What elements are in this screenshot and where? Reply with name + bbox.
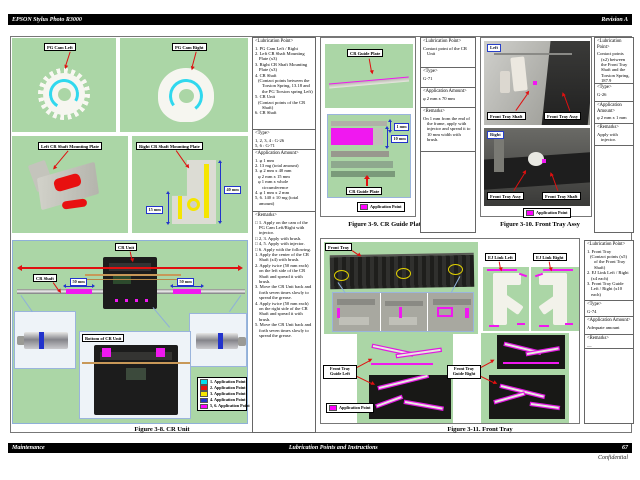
section-header: <Lubrication Point> [423,39,473,45]
legend-color-swatch [200,391,208,397]
legend-color-swatch [360,204,368,210]
section-lubrication-point: <Lubrication Point> 1. PG Cam Left / Rig… [253,38,315,130]
callout-line [153,307,170,327]
yellow-application-strip [178,196,182,219]
section-header: <Lubrication Point> [255,39,313,45]
spec-line: φ 2 mm x 1 mm [597,115,631,120]
label-front-tray-shaft: Front Tray Shaft [542,192,581,200]
yellow-callout-ellipse [334,270,349,281]
measure-arrow-40mm [220,163,221,221]
section-header: <Remarks> [587,336,631,342]
blue-application-band [218,333,223,349]
cr-guide-plate-detail: 1 mm 10 mm CR Guide Plate [327,114,411,198]
casting-detail [337,299,375,305]
footer-section-title: Lubrication Points and Instructions [289,445,378,451]
yellow-callout-ellipse [448,264,463,275]
label-ej-link-left: EJ Link Left [485,253,516,261]
label-front-tray-assy: Front Tray Assy [544,112,581,120]
measure-arrow-50mm-right [173,286,201,287]
spec-line: 2. Apply twice (50 mm each) on the left … [255,263,313,285]
left-cr-shaft-mounting-plate-photo: Left CR Shaft Mounting Plate [12,136,128,233]
spec-line: φ 1 mm x whole circumference [255,179,313,190]
fig3-8-legend: 1. Application Point2. Application Point… [197,377,247,411]
magenta-application-mark [489,325,499,327]
section-application-amount: <Application Amount> Adequate amount [585,317,633,335]
guide-left-photo-2 [369,375,451,419]
spec-line: 5. Move the CR Unit back and forth seven… [255,322,313,338]
legend-color-swatch [200,404,208,410]
cable-art [82,362,190,364]
red-arrow [65,51,71,65]
spec-line: Adequate amount [587,325,631,330]
callout-line [229,295,241,312]
section-remarks: <Remarks> □ 1. Apply on the cam of the P… [253,212,315,433]
section-lines: On 1 mm from the end of the frame, apply… [423,116,473,143]
cr-unit-bottom-detail [126,368,146,380]
label-front-tray: Front Tray [325,243,352,251]
spec-line: (Contact points of the CR Shaft) [255,100,313,111]
spec-line: Apply with injector. [597,132,631,143]
yellow-application-strip [204,164,209,218]
section-empty [421,152,475,233]
label-cr-guide-plate: CR Guide Plate [347,49,383,57]
gear-hole-art [58,88,71,101]
section-remarks: <Remarks> Apply with injector. [595,124,633,146]
spec-line: Contact points (x2) between the Front Tr… [597,51,631,83]
legend-color-swatch [200,379,208,385]
magenta-application-dot [542,159,546,163]
spec-table-fig3-8: <Lubrication Point> 1. PG Cam Left / Rig… [252,37,316,433]
legend-entry: Application Point [360,204,402,210]
spec-table-fig3-10: <Lubrication Point> Contact points (x2) … [594,37,634,233]
spec-line: (Contact points (x5) of the Front Tray S… [587,254,631,270]
dim-15mm: 15 mm [146,206,163,214]
magenta-application-dot [145,299,148,302]
section-header: <Type> [255,131,313,137]
red-travel-arrow [21,267,239,269]
legend-label: Application Point [536,210,568,216]
magenta-application-mark [399,307,402,318]
yellow-application-ring [187,198,200,211]
legend-color-swatch [526,210,534,216]
magenta-application-mark [565,323,573,325]
right-cr-shaft-mounting-plate-photo: 40 mm 15 mm Right CR Shaft Mounting Plat… [132,136,248,233]
magenta-application-mark [539,325,549,327]
section-empty [585,349,633,424]
cable-art [85,274,181,276]
zoom-divider [427,293,428,332]
header-revision: Revision A [601,17,628,23]
pg-cam-left-photo: PG Cam Left [12,38,116,132]
spec-line: 3. Move the CR Unit back and forth seven… [255,284,313,300]
spec-line: □ 4, 5. Apply with injector. [255,241,313,246]
spec-line: Contact point of the CR Unit [423,46,473,57]
section-header: <Type> [597,85,631,91]
confidential-note: Confidential [598,455,628,461]
cable-art [85,279,181,280]
label-ej-link-right: EJ Link Right [533,253,567,261]
badge-left: Left [487,44,501,52]
layer-art [331,151,389,157]
shaft-cylinder-art [196,333,238,349]
spec-line: □ 1. Apply on the cam of the PG Cam Left… [255,220,313,236]
section-header: <Remarks> [597,125,631,131]
cr-unit-photo-panel: CR Unit CR Shaft 50 mm 50 mm [12,240,248,424]
dim-10mm: 10 mm [391,135,408,143]
spec-line: 3. Front Tray Guide Left / Right (x10 ea… [587,281,631,297]
shaft-end-callout-right [189,313,247,367]
section-lines: φ 2 mm x 70 mm [423,96,473,101]
label-front-tray-guide-left: Front Tray Guide Left [323,365,357,379]
section-lines: 1. PG Cam Left / Right2. Left CR Shaft M… [255,46,313,116]
fig3-11-caption: Figure 3-11. Front Tray [330,426,630,433]
guide-right-photos [481,333,569,423]
section-header: <Application Amount> [597,103,631,114]
section-lines: Contact point of the CR Unit [423,46,473,57]
section-lines: 1. φ 1 mm2. 13 mg (total amount)3. φ 2 m… [255,158,313,207]
cr-guide-plate-photo: CR Guide Plate [325,44,413,108]
red-up-arrow [366,179,368,186]
label-pg-cam-right: PG Cam Right [172,43,207,51]
spec-line: — [587,343,631,348]
lubricated-rib-art [397,349,441,357]
red-arrow [191,52,196,67]
section-lines: G-74 [587,309,631,314]
guide-right-photo-2 [489,375,565,419]
legend-label: Application Point [370,204,402,210]
section-header: <Application Amount> [255,151,313,157]
measure-arrow-50mm-left [66,286,92,287]
shaft-cylinder-art [24,332,68,349]
spec-line: 2. EJ Link Left / Right (x4 each) [587,270,631,281]
bottom-of-cr-unit-callout: Bottom of CR Unit [79,331,191,419]
section-type: <Type> G-26 [595,84,633,102]
magenta-application-square [156,348,165,357]
guide-left-photo-1 [365,335,449,369]
measure-arrow-1mm [390,122,391,130]
section-header: <Application Amount> [587,318,631,324]
magenta-application-dot [533,81,537,85]
section-lubrication-point: <Lubrication Point> 1. Front Tray(Contac… [585,241,633,301]
legend-label: 5, 6. Application Point [210,403,250,409]
spec-line: 5, 6. 140 ± 10 mg (total amount) [255,195,313,206]
magenta-application-area [331,128,373,145]
red-arrow [548,262,550,268]
dim-50mm-left: 50 mm [70,278,87,286]
section-type: <Type> G-74 [585,301,633,317]
fig3-11-legend: Application Point [326,403,374,413]
dim-1mm: 1 mm [394,123,409,131]
magenta-application-dot [135,299,138,302]
spec-table-fig3-9: <Lubrication Point> Contact point of the… [420,37,476,233]
dim-40mm: 40 mm [224,186,241,194]
casting-detail [385,301,423,306]
section-remarks: <Remarks> On 1 mm from the end of the fr… [421,108,475,152]
magenta-application-dot [115,299,118,302]
magenta-application-strip [66,289,92,294]
legend-color-swatch [329,405,337,411]
magenta-application-mark [543,269,573,271]
blue-application-band [39,332,44,349]
legend-color-swatch [200,385,208,391]
section-application-amount: <Application Amount> φ 2 mm x 70 mm [421,88,475,108]
magenta-application-mark [337,308,340,318]
yellow-callout-ellipse [396,268,411,279]
section-lines: □ 1. Apply on the cam of the PG Cam Left… [255,220,313,339]
manual-page: EPSON Stylus Photo R3000 Revision A PG C… [0,0,640,480]
label-left-cr-shaft-mounting-plate: Left CR Shaft Mounting Plate [38,142,102,150]
guide-right-photo-1 [497,335,565,369]
magenta-application-square [102,348,111,357]
front-tray-zoom-panel [332,292,474,332]
ej-link-art [539,273,567,285]
legend-color-swatch [200,398,208,404]
guide-plate-strip-art [329,77,409,88]
magenta-application-dot [125,299,128,302]
spec-line: 3. Right CR Shaft Mounting Plate (x3) [255,62,313,73]
magenta-application-mark [465,308,469,318]
footer-page-number: 67 [622,445,628,451]
pg-cam-right-photo: PG Cam Right [120,38,248,132]
spec-table-fig3-11: <Lubrication Point> 1. Front Tray(Contac… [584,240,634,424]
section-lines: Contact points (x2) between the Front Tr… [597,51,631,83]
footer-chapter: Maintenance [12,445,45,451]
section-application-amount: <Application Amount> φ 2 mm x 1 mm [595,102,633,124]
section-header: <Type> [587,302,631,308]
label-cr-shaft: CR Shaft [33,274,57,282]
section-header: <Application Amount> [423,89,473,95]
section-lines: 1. Front Tray(Contact points (x5) of the… [587,249,631,298]
spec-line: 4. Apply twice (50 mm each) on the right… [255,301,313,323]
front-tray-left-photo: Left Front Tray Shaft Front Tray Assy [484,41,590,125]
label-front-tray-shaft: Front Tray Shaft [487,112,526,120]
spec-line: 1. Apply the center of the CR Shaft (x4)… [255,252,313,263]
label-right-cr-shaft-mounting-plate: Right CR Shaft Mounting Plate [136,142,203,150]
magenta-application-ring [437,307,453,317]
lubricated-rib-art [379,375,428,389]
fig3-10-caption: Figure 3-10. Front Tray Assy [478,221,602,228]
red-arrow [129,252,132,259]
section-lines: G-71 [423,76,473,81]
label-front-tray-guide-right: Front Tray Guide Right [447,365,481,379]
casting-detail [339,317,369,325]
lubricated-rib-art [377,396,402,407]
dim-50mm-right: 50 mm [177,278,194,286]
red-arrow [498,262,500,268]
section-lines: 1, 2, 3, 4 : G-265, 6 : G-71 [255,138,313,149]
lubricated-rib-art [501,385,544,398]
lubricated-rib-art [495,393,524,403]
shaft-line-art [494,53,572,55]
fig3-10-legend: Application Point [523,208,571,218]
frame-edge-art [331,121,387,126]
red-arrow [368,59,371,71]
spec-line: 6. CR Shaft [255,110,313,115]
front-tray-right-photo: Right Front Tray Assy Front Tray Shaft [484,128,590,206]
spec-line: 2. Left CR Shaft Mounting Plate (x3) [255,51,313,62]
page-footer-bar: Maintenance Lubrication Points and Instr… [8,443,632,453]
spec-line: (Contact points between the Torsion Spri… [255,78,313,94]
spec-line: G-26 [597,92,631,97]
frame-step-art [373,128,383,145]
casting-detail [433,299,471,305]
spec-line: On 1 mm from the end of the frame, apply… [423,116,473,143]
fig3-11-box: Front Tray EJ Link Left [320,238,580,424]
red-arrow [55,150,69,166]
spec-line: G-71 [423,76,473,81]
section-lubrication-point: <Lubrication Point> Contact point of the… [421,38,475,68]
fig3-9-box: CR Guide Plate 1 mm 10 mm CR Guide Plate… [320,37,416,217]
label-front-tray-assy: Front Tray Assy [487,192,524,200]
layer-art [331,161,393,168]
zoom-divider [380,293,381,332]
section-lines: G-26 [597,92,631,97]
section-empty [595,146,633,233]
section-lines: Apply with injector. [597,132,631,143]
section-type: <Type> 1, 2, 3, 4 : G-265, 6 : G-71 [253,130,315,150]
label-pg-cam-left: PG Cam Left [44,43,76,51]
section-header: <Lubrication Point> [587,242,631,248]
red-arrow [515,94,528,111]
shaft-end-callout-left [14,311,76,369]
magenta-application-mark [517,323,525,325]
casting-detail [389,317,417,325]
header-title: EPSON Stylus Photo R3000 [12,17,82,23]
spec-line: φ 2 mm x 70 mm [423,96,473,101]
section-lines: Adequate amount [587,325,631,330]
fig3-9-legend: Application Point [357,202,405,212]
front-tray-photo-panel: Front Tray [324,242,478,334]
measure-arrow-15mm [168,194,169,222]
fig3-10-box: Left Front Tray Shaft Front Tray Assy Ri… [480,37,592,217]
white-bracket-art [510,56,527,91]
ej-link-art [493,273,521,285]
section-header: <Remarks> [255,213,313,219]
section-lines: φ 2 mm x 1 mm [597,115,631,120]
red-arrow [175,150,186,166]
lubricated-rib-art [531,403,559,409]
legend-entry: 5, 6. Application Point [200,403,244,409]
ej-link-right-photo [531,267,579,331]
section-header: <Lubrication Point> [597,39,631,50]
measure-arrow-10mm [387,129,388,146]
spec-line: G-74 [587,309,631,314]
callout-line [21,295,33,312]
label-cr-guide-plate-detail: CR Guide Plate [346,187,382,195]
magenta-application-line [503,362,559,364]
legend-entry: Application Point [329,405,371,411]
cam-hole-art [179,89,194,103]
page-header-bar: EPSON Stylus Photo R3000 Revision A [8,14,632,25]
section-type: <Type> G-71 [421,68,475,88]
section-lines: — [587,343,631,348]
legend-label: Application Point [339,405,371,411]
lubricated-rib-art [405,401,443,410]
section-header: <Remarks> [423,109,473,115]
shaft-tip-art [238,337,246,346]
magenta-application-line [371,363,433,365]
label-bottom-of-cr-unit: Bottom of CR Unit [82,334,124,342]
ej-link-left-photo [483,267,529,331]
spec-line: 5, 6 : G-71 [255,143,313,148]
section-application-amount: <Application Amount> 1. φ 1 mm2. 13 mg (… [253,150,315,212]
badge-right: Right [487,131,504,139]
label-cr-unit: CR Unit [115,243,137,251]
section-header: <Type> [423,69,473,75]
legend-entry: Application Point [526,210,568,216]
section-lubrication-point: <Lubrication Point> Contact points (x2) … [595,38,633,84]
white-bracket-art [500,71,510,93]
section-remarks: <Remarks> — [585,335,633,349]
magenta-application-strip [173,289,201,294]
